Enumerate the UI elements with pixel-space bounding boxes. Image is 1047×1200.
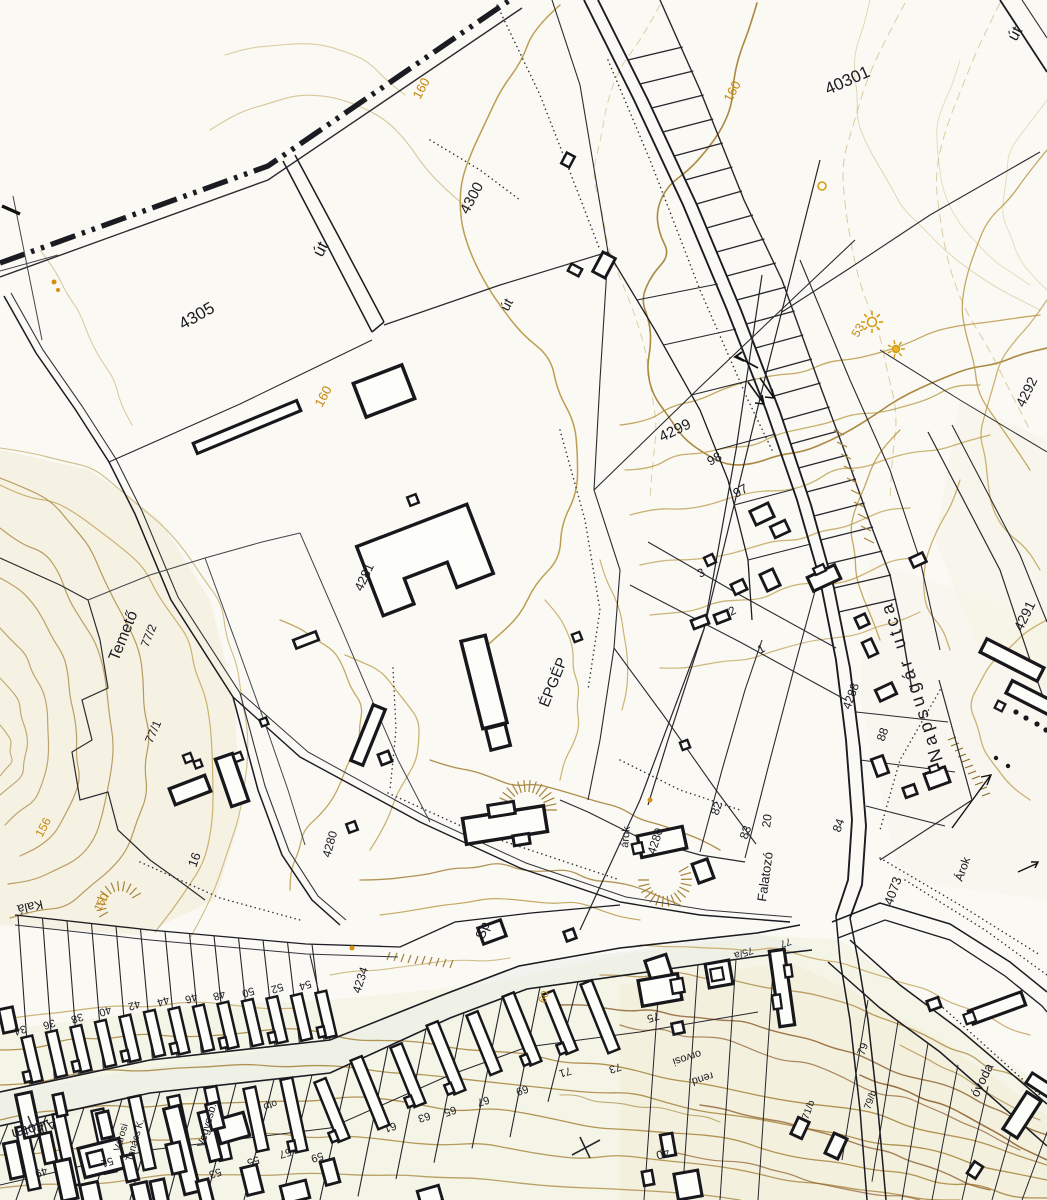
svg-text:árok: árok xyxy=(619,825,633,848)
svg-text:20: 20 xyxy=(759,813,775,828)
